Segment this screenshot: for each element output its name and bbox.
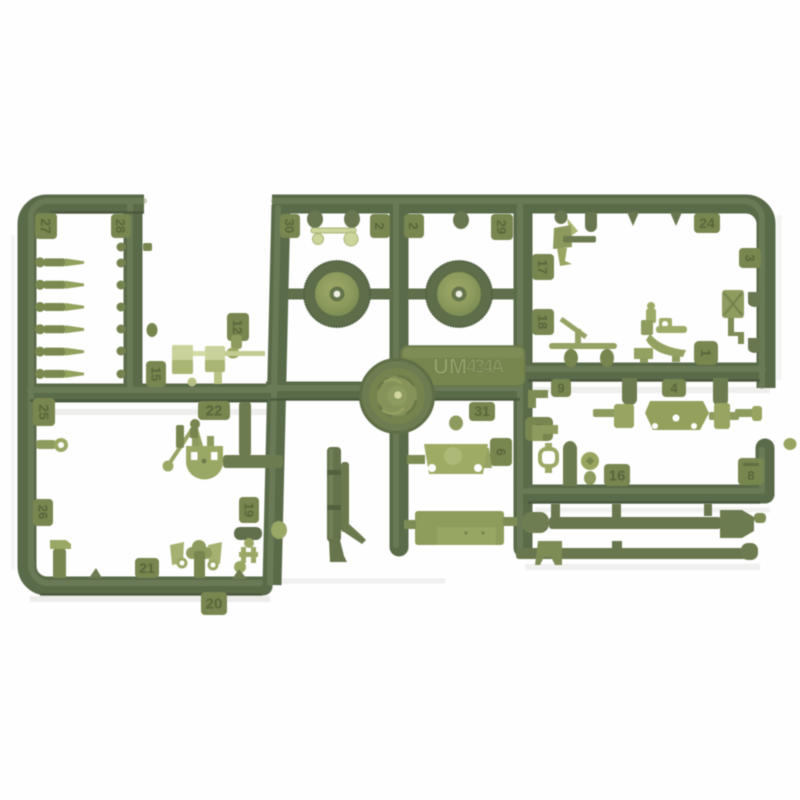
- svg-text:22: 22: [206, 403, 223, 420]
- svg-text:15: 15: [149, 367, 164, 381]
- svg-text:20: 20: [206, 596, 223, 613]
- svg-text:434A: 434A: [466, 356, 504, 378]
- svg-text:17: 17: [535, 260, 550, 274]
- svg-text:21: 21: [139, 560, 155, 576]
- svg-text:16: 16: [609, 468, 626, 485]
- svg-text:2: 2: [406, 222, 421, 229]
- svg-text:6: 6: [494, 448, 509, 455]
- svg-text:3: 3: [743, 254, 758, 261]
- svg-text:26: 26: [36, 505, 51, 519]
- svg-text:4: 4: [670, 381, 678, 396]
- svg-text:12: 12: [230, 320, 245, 334]
- svg-text:19: 19: [242, 503, 257, 517]
- svg-text:27: 27: [38, 218, 54, 234]
- svg-text:31: 31: [474, 403, 490, 419]
- svg-text:25: 25: [36, 404, 52, 420]
- svg-text:8: 8: [747, 468, 754, 483]
- svg-text:28: 28: [113, 219, 128, 233]
- svg-text:1: 1: [698, 349, 714, 357]
- svg-text:18: 18: [535, 315, 550, 329]
- svg-text:UM: UM: [433, 354, 467, 379]
- svg-text:29: 29: [494, 220, 509, 234]
- svg-text:2: 2: [372, 222, 387, 229]
- svg-text:9: 9: [557, 381, 564, 396]
- svg-text:24: 24: [699, 215, 715, 231]
- svg-text:30: 30: [282, 219, 297, 233]
